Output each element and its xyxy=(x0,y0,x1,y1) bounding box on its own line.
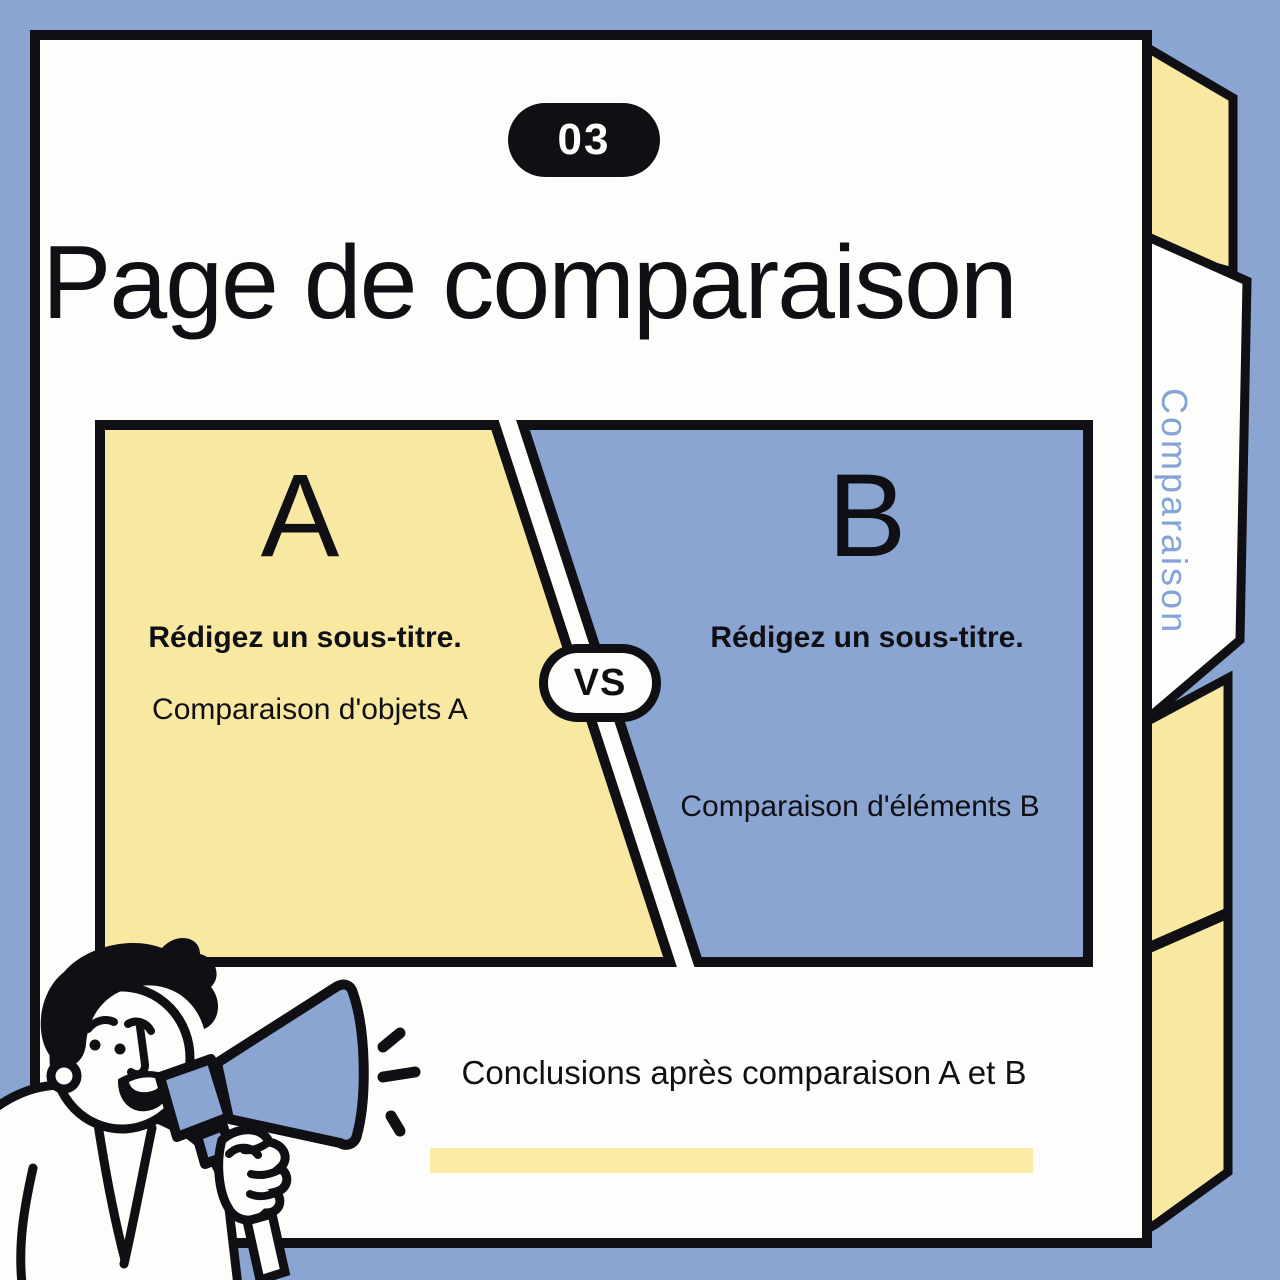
vs-badge: VS xyxy=(539,644,661,722)
person-eye-left xyxy=(90,1040,101,1051)
panel-b-letter: B xyxy=(797,457,937,575)
megaphone-cone-icon xyxy=(217,985,364,1145)
sound-dash-middle xyxy=(383,1072,415,1077)
person-ear xyxy=(51,1063,77,1089)
sound-dash-bottom xyxy=(391,1116,400,1131)
highlight-bar xyxy=(430,1148,1033,1173)
vs-label: VS xyxy=(574,662,627,705)
person-eye-right xyxy=(115,1044,126,1055)
panel-a-letter: A xyxy=(230,457,370,575)
sound-dash-top xyxy=(383,1033,400,1047)
panel-b-subtitle: Rédigez un sous-titre. xyxy=(672,620,1062,656)
man-with-megaphone-illustration xyxy=(0,930,440,1280)
panel-a-caption: Comparaison d'objets A xyxy=(110,692,510,728)
megaphone-handle-bottom xyxy=(247,1214,285,1280)
slide-page: Comparaison 03 Page de comparaison A Réd… xyxy=(0,0,1280,1280)
panel-a-subtitle: Rédigez un sous-titre. xyxy=(110,620,500,656)
panel-b-caption: Comparaison d'éléments B xyxy=(660,789,1060,825)
person-finger-line-3 xyxy=(250,1193,275,1196)
conclusion-text: Conclusions après comparaison A et B xyxy=(404,1054,1084,1092)
